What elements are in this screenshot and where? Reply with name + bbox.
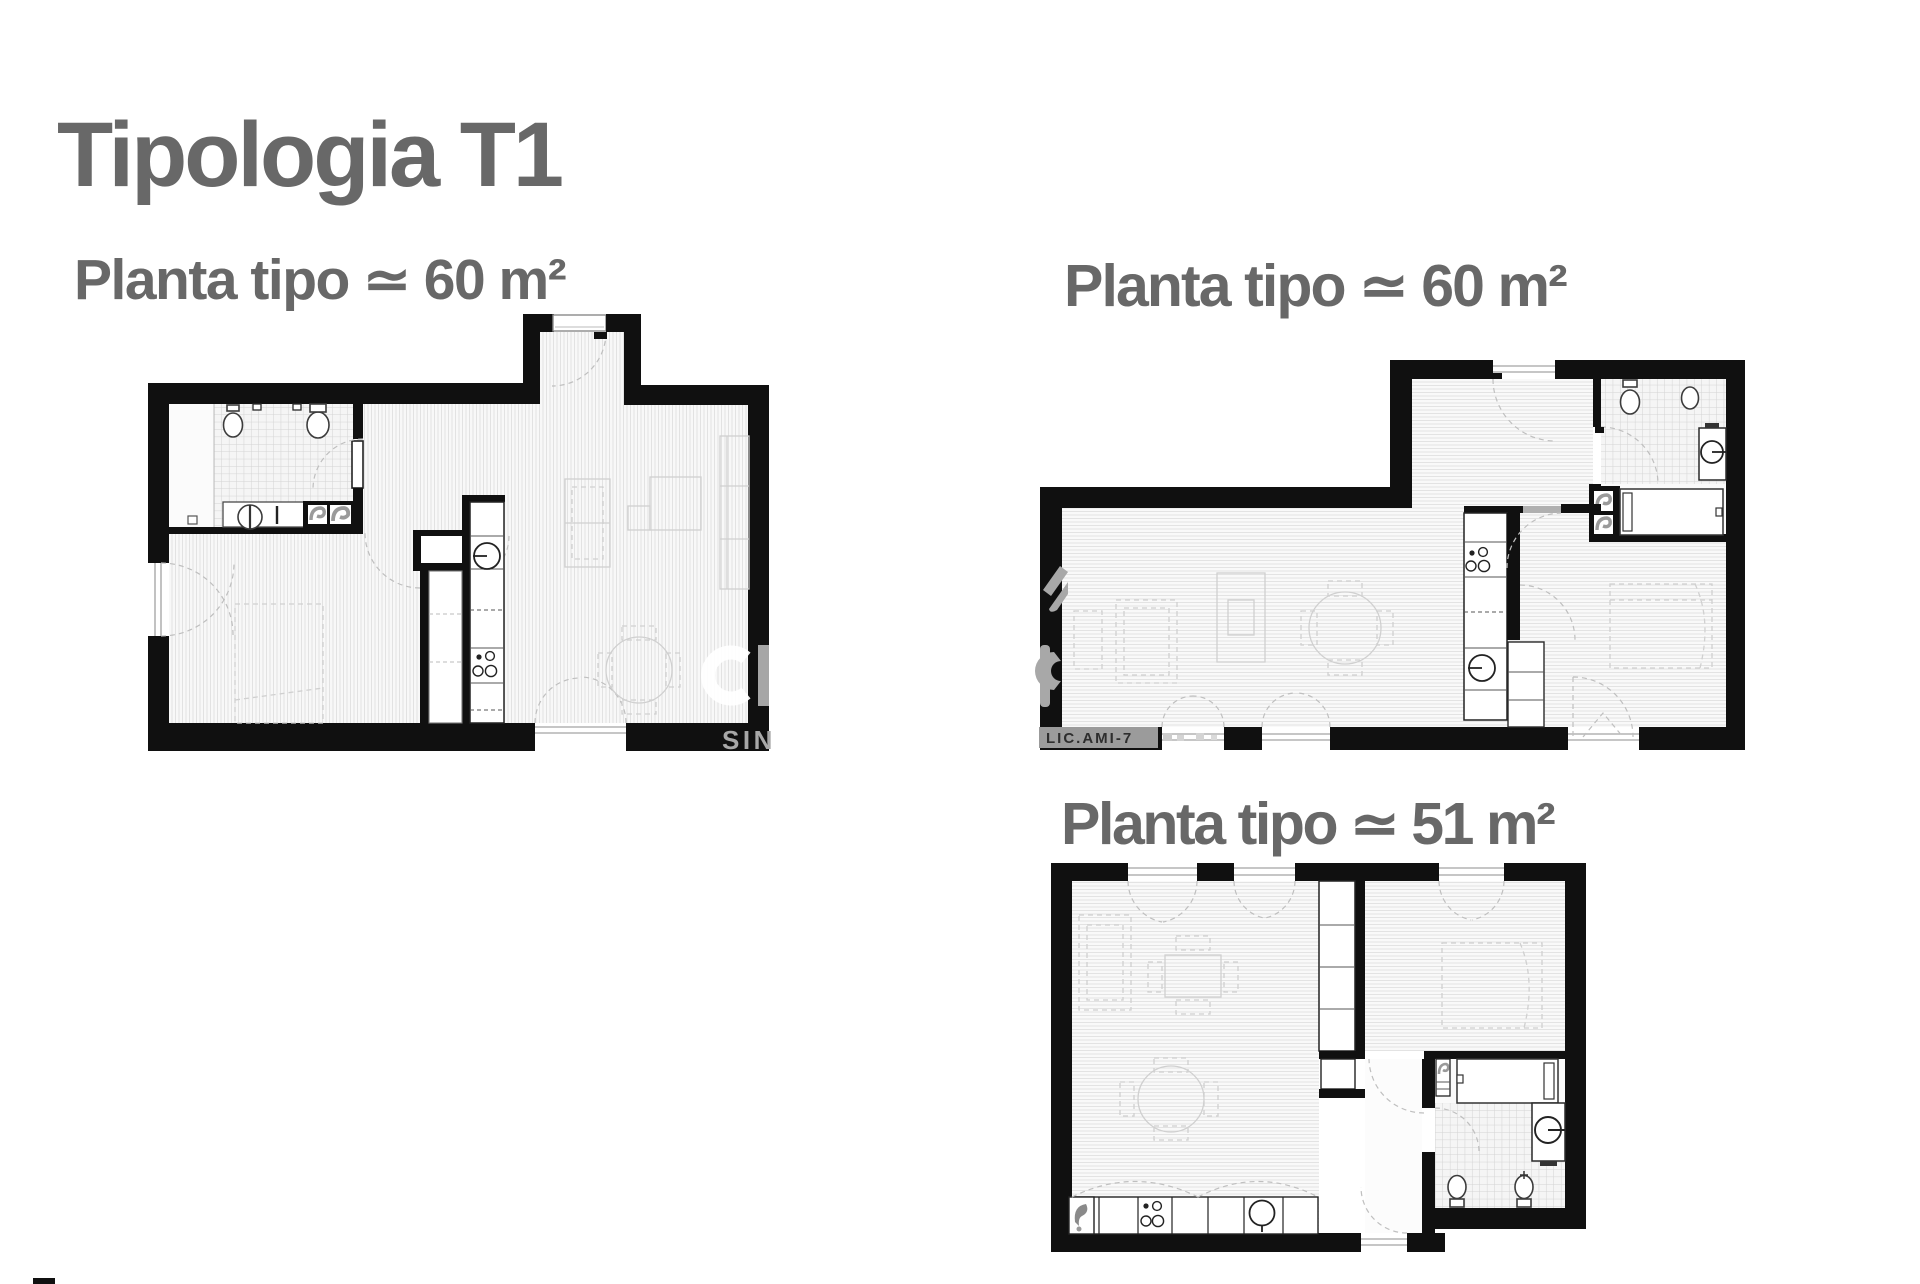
- svg-text:SIN: SIN: [722, 725, 776, 755]
- svg-text:Planta tipo ≃ 60 m²: Planta tipo ≃ 60 m²: [1064, 253, 1567, 319]
- svg-text:Planta tipo ≃ 51 m²: Planta tipo ≃ 51 m²: [1061, 791, 1555, 857]
- svg-text:Tipologia T1: Tipologia T1: [57, 104, 562, 206]
- svg-text:Planta tipo ≃ 60 m²: Planta tipo ≃ 60 m²: [74, 248, 566, 312]
- svg-text:LIC.AMI-7: LIC.AMI-7: [1046, 730, 1133, 747]
